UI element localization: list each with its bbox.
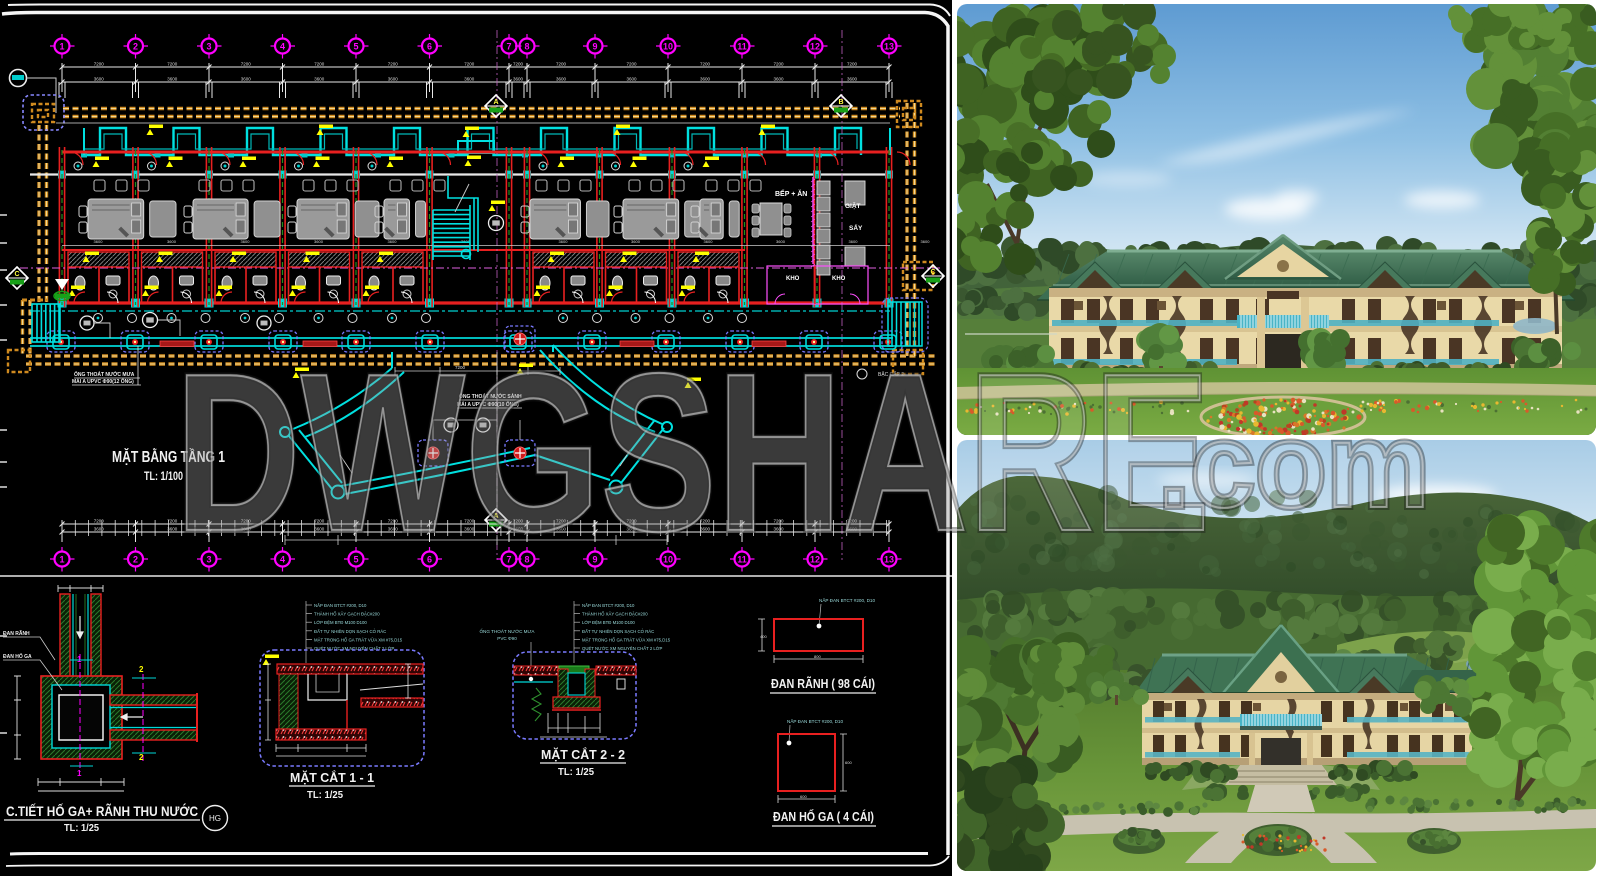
svg-text:600: 600 xyxy=(800,794,807,799)
svg-text:PVC Φ90: PVC Φ90 xyxy=(497,636,517,641)
svg-text:LỚP ĐỆM BTĐ M100 D100: LỚP ĐỆM BTĐ M100 D100 xyxy=(314,620,367,625)
svg-text:1: 1 xyxy=(77,769,82,778)
svg-text:ỐNG THOÁT NƯỚC MƯA: ỐNG THOÁT NƯỚC MƯA xyxy=(479,628,535,634)
svg-text:3600: 3600 xyxy=(631,239,641,244)
svg-text:NẮP ĐAN BTCT #200, D10: NẮP ĐAN BTCT #200, D10 xyxy=(819,596,875,603)
svg-text:NẮP ĐAN BTCT #200, D10: NẮP ĐAN BTCT #200, D10 xyxy=(582,603,635,608)
svg-text:C: C xyxy=(14,271,19,278)
svg-text:7200: 7200 xyxy=(241,62,252,67)
svg-text:THÀNH HỐ XÂY GẠCH ĐẶC#200: THÀNH HỐ XÂY GẠCH ĐẶC#200 xyxy=(314,612,380,617)
svg-text:NẮP ĐAN BTCT #200, D10: NẮP ĐAN BTCT #200, D10 xyxy=(314,603,367,608)
svg-text:3600: 3600 xyxy=(849,239,859,244)
svg-text:7200: 7200 xyxy=(94,62,105,67)
svg-text:ỐNG THOÁT NƯỚC MƯA: ỐNG THOÁT NƯỚC MƯA xyxy=(74,370,135,378)
svg-text:3600: 3600 xyxy=(700,77,711,82)
svg-text:3600: 3600 xyxy=(921,239,931,244)
svg-text:A: A xyxy=(493,99,498,106)
svg-text:7200: 7200 xyxy=(314,62,325,67)
svg-text:2: 2 xyxy=(139,665,144,674)
svg-text:ĐAN RÃNH: ĐAN RÃNH xyxy=(3,630,30,637)
svg-text:3600: 3600 xyxy=(513,77,524,82)
svg-text:TL: 1/25: TL: 1/25 xyxy=(64,822,99,834)
svg-text:10: 10 xyxy=(663,42,673,52)
svg-text:3600: 3600 xyxy=(773,77,784,82)
svg-text:3600: 3600 xyxy=(464,77,475,82)
svg-text:TL: 1/25: TL: 1/25 xyxy=(558,766,594,778)
svg-text:3600: 3600 xyxy=(704,239,714,244)
svg-text:600: 600 xyxy=(845,760,852,765)
svg-text:8: 8 xyxy=(524,42,529,52)
svg-text:LỚP ĐỆM BTĐ M100 D100: LỚP ĐỆM BTĐ M100 D100 xyxy=(582,620,635,625)
svg-text:6: 6 xyxy=(427,42,432,52)
svg-text:3600: 3600 xyxy=(94,77,105,82)
svg-text:MẶT CẮT 2 - 2: MẶT CẮT 2 - 2 xyxy=(541,747,625,762)
svg-text:ĐAN RÃNH ( 98 CÁI): ĐAN RÃNH ( 98 CÁI) xyxy=(771,676,875,691)
svg-text:7200: 7200 xyxy=(626,62,637,67)
svg-text:KHO: KHO xyxy=(832,276,846,282)
svg-text:3600: 3600 xyxy=(776,239,786,244)
svg-text:7: 7 xyxy=(506,42,511,52)
svg-text:3600: 3600 xyxy=(314,77,325,82)
svg-text:3600: 3600 xyxy=(241,239,251,244)
svg-text:13: 13 xyxy=(884,42,894,52)
svg-text:7200: 7200 xyxy=(513,62,524,67)
svg-text:3600: 3600 xyxy=(167,77,178,82)
svg-text:1: 1 xyxy=(59,555,64,565)
svg-text:C: C xyxy=(930,269,935,276)
svg-text:5: 5 xyxy=(353,42,358,52)
svg-text:3600: 3600 xyxy=(847,77,858,82)
svg-text:7200: 7200 xyxy=(388,62,399,67)
svg-text:3600: 3600 xyxy=(167,239,177,244)
svg-text:2: 2 xyxy=(139,753,144,762)
svg-text:MẶT CẮT 1 - 1: MẶT CẮT 1 - 1 xyxy=(290,770,374,785)
svg-text:HG: HG xyxy=(209,814,221,823)
svg-text:800: 800 xyxy=(814,654,821,659)
svg-text:3600: 3600 xyxy=(556,77,567,82)
svg-text:3600: 3600 xyxy=(388,239,398,244)
svg-text:2: 2 xyxy=(133,555,138,565)
svg-text:ĐẤT TỰ NHIÊN DỌN SẠCH CỎ RÁC: ĐẤT TỰ NHIÊN DỌN SẠCH CỎ RÁC xyxy=(582,629,654,634)
svg-text:7200: 7200 xyxy=(700,62,711,67)
svg-text:MÁI A UPVC Φ90(12 ỐNG): MÁI A UPVC Φ90(12 ỐNG) xyxy=(72,378,134,385)
svg-text:DWGSHARE: DWGSHARE xyxy=(175,326,952,578)
svg-text:ĐẤT TỰ NHIÊN DỌN SẠCH CỎ RÁC: ĐẤT TỰ NHIÊN DỌN SẠCH CỎ RÁC xyxy=(314,629,386,634)
svg-text:3600: 3600 xyxy=(241,77,252,82)
svg-text:4: 4 xyxy=(280,42,285,52)
svg-text:MẶT TRONG HỐ GA TRÁT VỮA XM #7: MẶT TRONG HỐ GA TRÁT VỮA XM #75,D15 xyxy=(314,637,403,642)
svg-text:KHO: KHO xyxy=(786,276,800,282)
svg-text:3: 3 xyxy=(206,42,211,52)
svg-text:THÀNH HỐ XÂY GẠCH ĐẶC#200: THÀNH HỐ XÂY GẠCH ĐẶC#200 xyxy=(582,612,648,617)
svg-text:ĐAN HỐ GA: ĐAN HỐ GA xyxy=(3,653,32,660)
svg-text:GIẶT: GIẶT xyxy=(845,201,861,210)
svg-text:TL: 1/25: TL: 1/25 xyxy=(307,789,343,801)
svg-text:9: 9 xyxy=(592,42,597,52)
svg-text:ĐAN HỐ GA ( 4 CÁI): ĐAN HỐ GA ( 4 CÁI) xyxy=(773,809,874,824)
svg-text:3600: 3600 xyxy=(94,239,104,244)
svg-text:12: 12 xyxy=(810,42,820,52)
svg-text:1: 1 xyxy=(59,42,64,52)
svg-text:3600: 3600 xyxy=(388,77,399,82)
svg-text:MẶT TRONG HỐ GA TRÁT VỮA XM #7: MẶT TRONG HỐ GA TRÁT VỮA XM #75,D15 xyxy=(582,637,671,642)
svg-text:B: B xyxy=(838,99,843,106)
svg-text:7200: 7200 xyxy=(94,519,105,524)
svg-text:3600: 3600 xyxy=(94,527,105,532)
svg-text:7200: 7200 xyxy=(847,62,858,67)
svg-text:3600: 3600 xyxy=(559,239,569,244)
svg-text:7200: 7200 xyxy=(167,62,178,67)
svg-text:3600: 3600 xyxy=(626,77,637,82)
svg-text:2: 2 xyxy=(133,42,138,52)
svg-text:11: 11 xyxy=(737,42,747,52)
svg-text:7200: 7200 xyxy=(464,62,475,67)
svg-text:QUÉT NƯỚC XM NGUYÊN CHẤT 2 LỚP: QUÉT NƯỚC XM NGUYÊN CHẤT 2 LỚP xyxy=(582,646,662,651)
svg-text:3600: 3600 xyxy=(314,239,324,244)
svg-text:7200: 7200 xyxy=(556,62,567,67)
svg-text:NẮP ĐAN BTCT #200, D10: NẮP ĐAN BTCT #200, D10 xyxy=(787,717,843,724)
svg-text:7200: 7200 xyxy=(773,62,784,67)
svg-text:400: 400 xyxy=(760,634,767,639)
svg-text:C.TIẾT HỐ GA+ RÃNH THU NƯỚC: C.TIẾT HỐ GA+ RÃNH THU NƯỚC xyxy=(6,802,198,819)
